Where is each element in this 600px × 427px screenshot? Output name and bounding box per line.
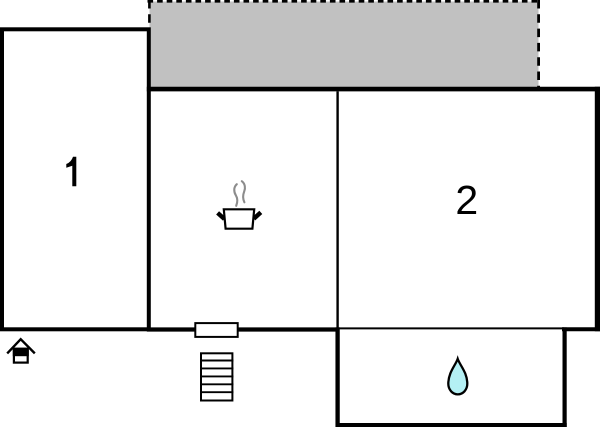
svg-text:2: 2 [455,177,478,223]
